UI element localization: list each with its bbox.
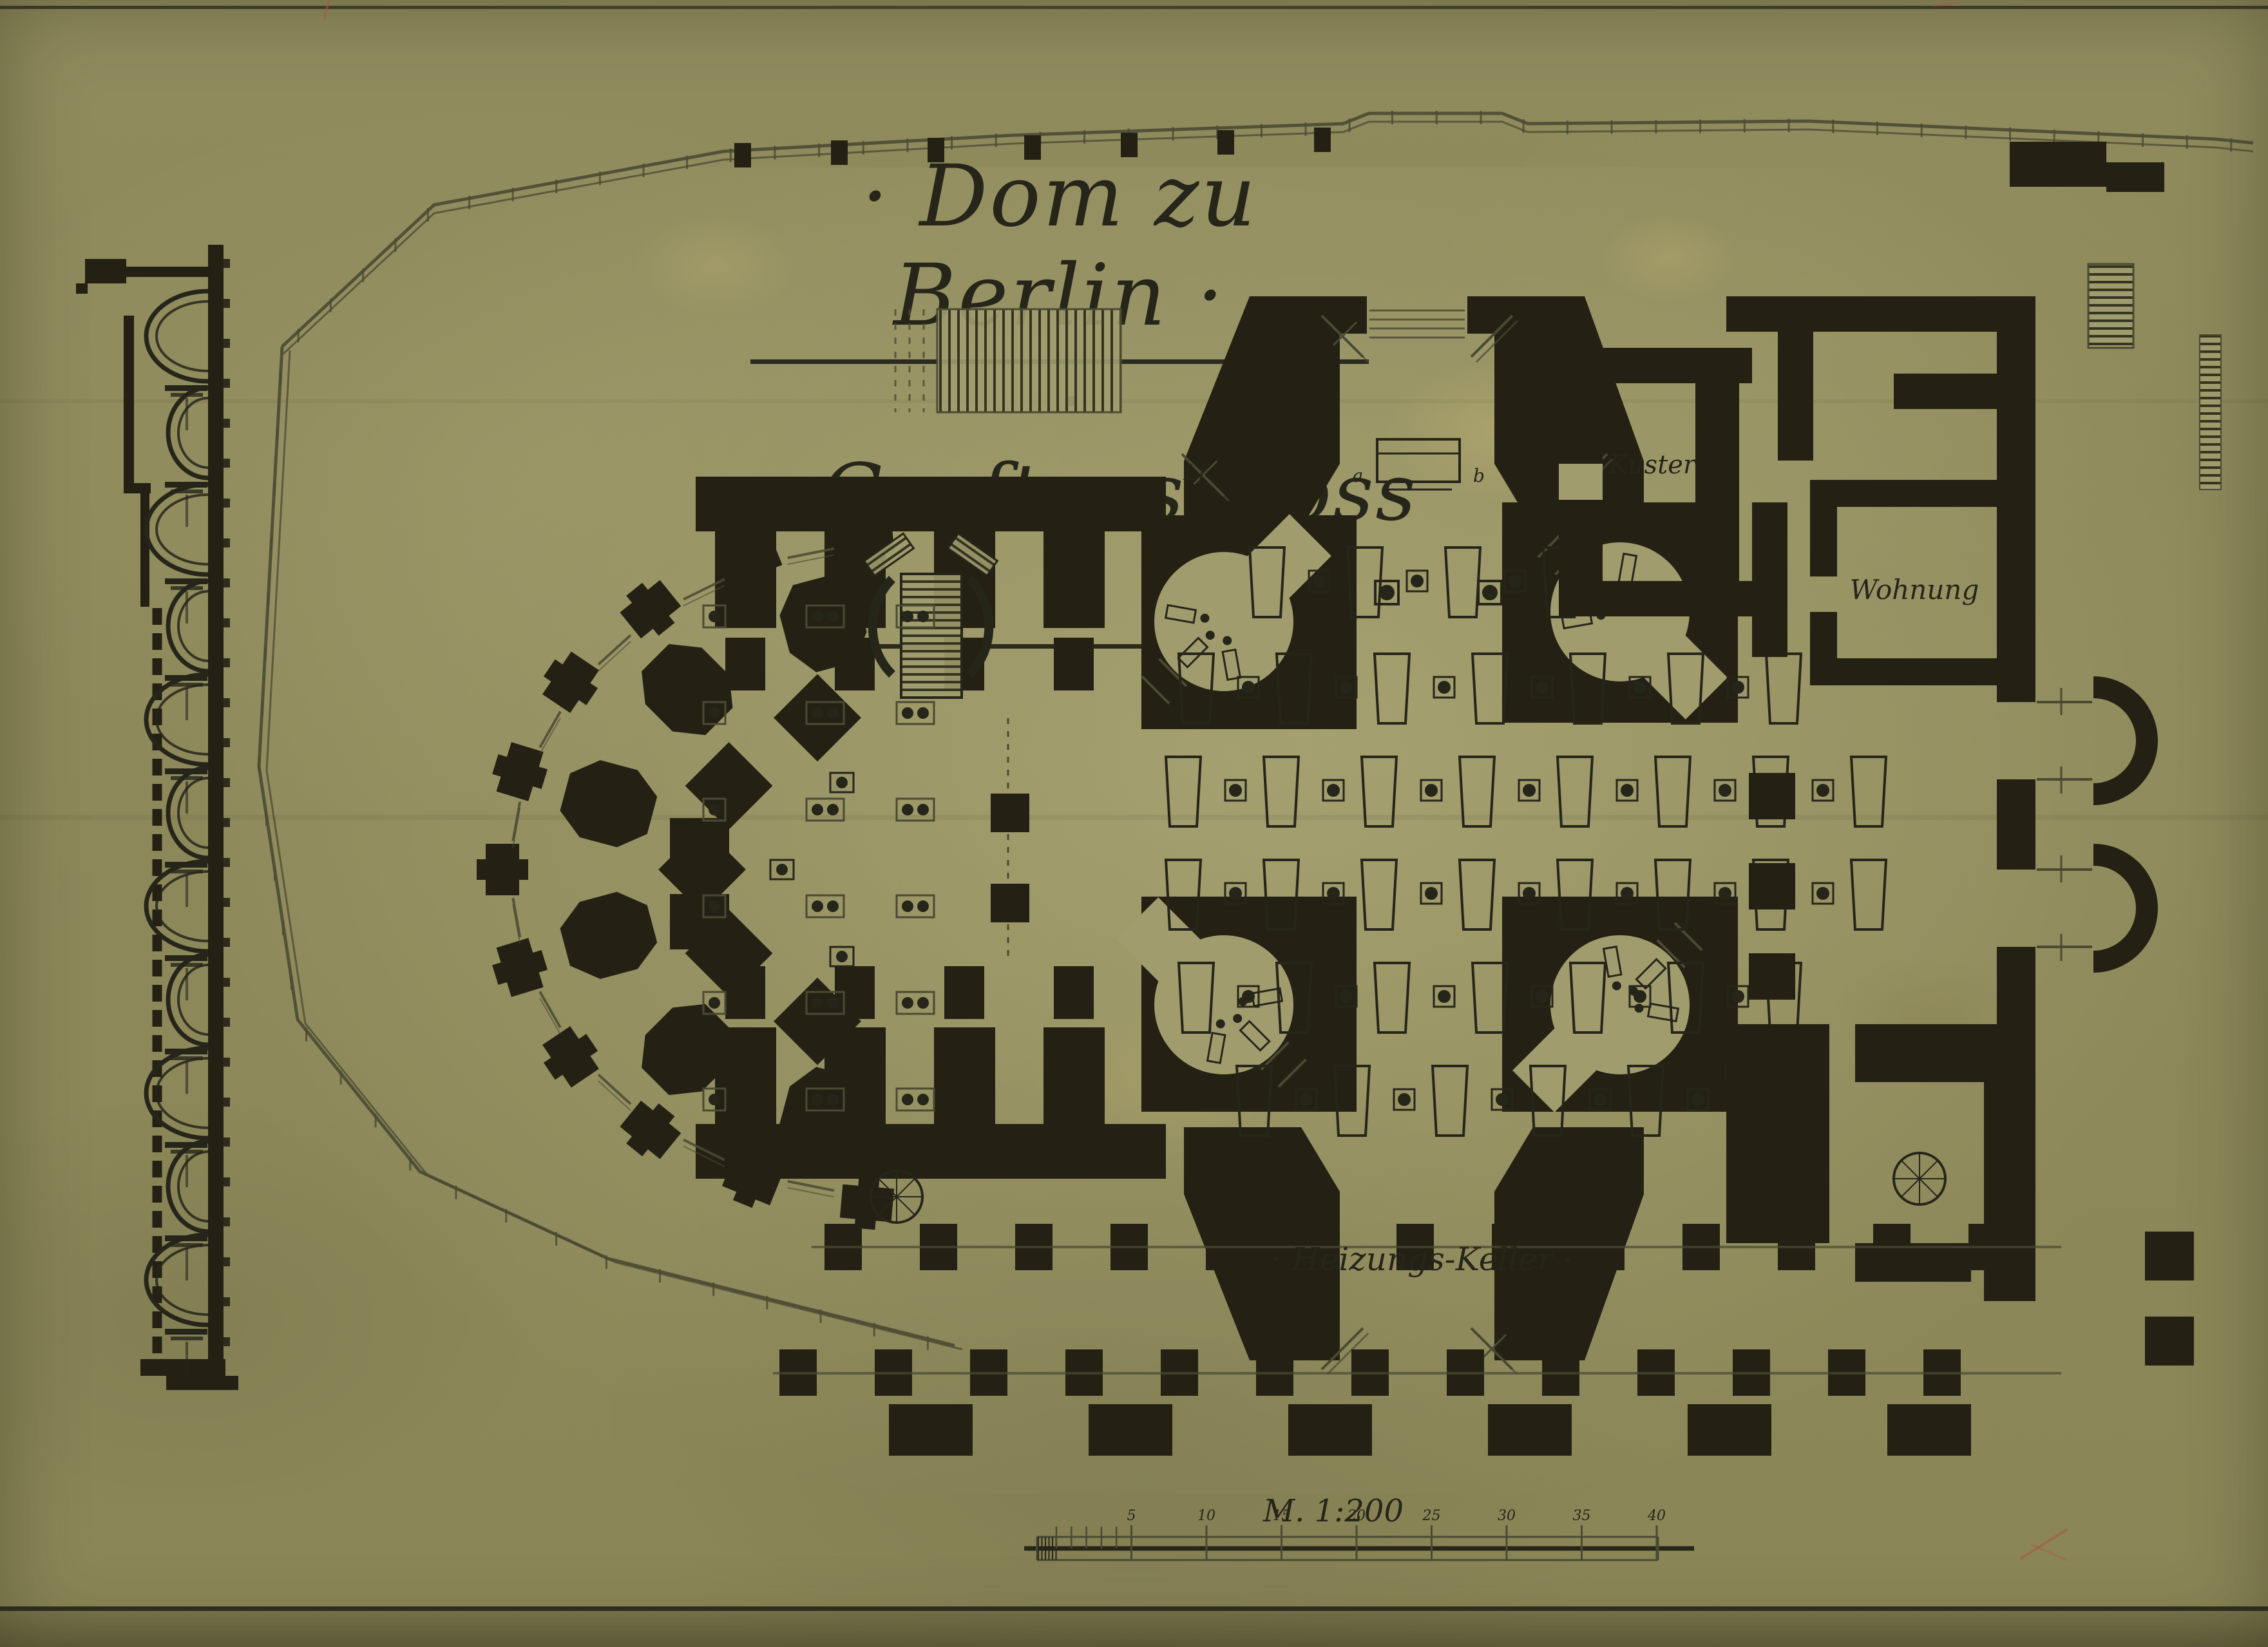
drawing-sheet: · Dom zu Berlin · · Gruftgeschoss · Lf K… — [0, 0, 2268, 1647]
label-heizungs-keller: · Heizungs-Keller · — [1271, 1241, 1573, 1278]
floor-plan: Lf Küster Wohnung · Heizungs-Keller · a … — [245, 103, 2254, 1456]
label-altar-b: b — [1473, 465, 1485, 486]
red-mark-bottom-right — [2019, 1528, 2068, 1560]
scale-text: M. 1:200 — [1263, 1493, 1404, 1529]
label-wohnung: Wohnung — [1850, 574, 1979, 605]
label-lf-shaft: Lf — [1183, 460, 1210, 486]
scale-tick-label: 30 — [1498, 1508, 1516, 1524]
sheet-top-edge — [0, 6, 2268, 9]
scale-tick-label: 5 — [1127, 1508, 1136, 1524]
sheet-bottom-edge — [0, 1606, 2268, 1611]
red-mark-top-left — [323, 0, 330, 19]
scale-tick-label: 25 — [1422, 1508, 1441, 1524]
scale-tick-label: 40 — [1647, 1508, 1666, 1524]
scale-bar: 510152025303540 M. 1:200 — [1011, 1475, 1746, 1591]
label-altar-a: a — [1353, 465, 1364, 486]
wall-section-drawing — [76, 240, 245, 1405]
label-kuester: Küster — [1608, 450, 1697, 480]
scale-tick-label: 35 — [1573, 1508, 1591, 1524]
red-mark-bottom-right-2 — [2030, 1543, 2066, 1561]
scale-tick-label: 10 — [1197, 1508, 1215, 1524]
sheet-bottom-shadow — [0, 1611, 2268, 1647]
red-mark-top-right — [1932, 1, 1959, 6]
